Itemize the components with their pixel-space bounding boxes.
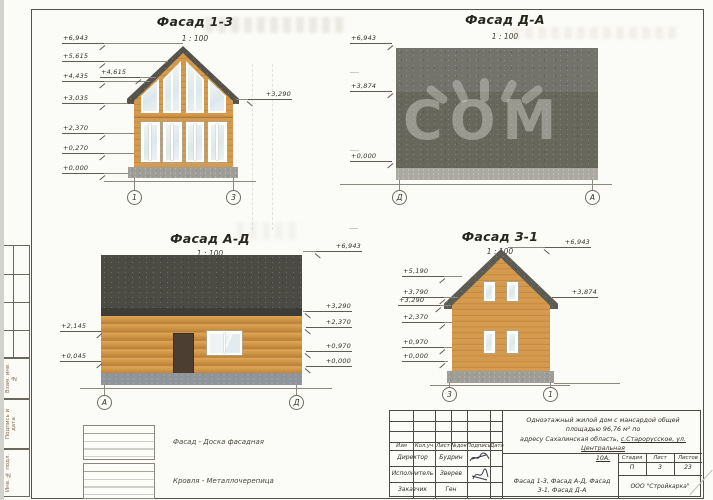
signature [470,468,490,482]
leader-line [140,77,156,78]
elevation-mark: +2,370 [306,316,352,328]
col-header-koluch: Кол.уч [413,443,435,449]
ground-line [340,184,612,185]
elevation-value: +0,970 [326,343,351,350]
facade-1-3-scale: 1 : 100 [125,34,265,43]
stage-value: П [618,465,646,472]
elevation-value: +3,035 [63,95,88,102]
elevation-value: +0,000 [351,153,376,160]
side-stamp-grid [3,245,30,358]
side-stamp-label: Подпись и дата [5,402,17,446]
leader-line [440,305,451,306]
ghost-plan-smudge [236,222,302,240]
floor-trim-line [134,117,233,118]
base-strip [396,168,598,180]
role-executor: Исполнитель [390,471,435,478]
elevation-value: +2,370 [403,314,428,321]
elevation-mark: +0,000 [62,162,104,174]
scan-mark [350,72,359,73]
leader-line [444,347,452,348]
col-header-data: Дата [490,443,502,449]
leader-line [104,43,183,44]
elevation-mark: +0,000 [350,150,392,162]
leader-line [303,251,316,252]
leader-line [444,322,452,323]
axis-bubble: Д [392,190,407,205]
watermark-text: COM [403,94,563,148]
axis-bubble: А [97,395,112,410]
axis-bubble: 1 [543,387,558,402]
foundation-a-d [101,373,302,385]
leader-line [236,99,248,100]
legend-label: Фасад - Доска фасадная [173,438,264,446]
leader-line [104,153,134,154]
elevation-mark: +0,970 [402,336,444,348]
elevation-mark: +2,145 [60,320,101,332]
scan-edge [0,0,4,500]
axis-bubble: Д [289,395,304,410]
ghost-line [252,64,253,230]
elevation-value: +0,000 [326,358,351,365]
elevation-value: +4,435 [63,73,88,80]
stage-label: Стадия [618,455,646,461]
elevation-value: +2,145 [61,323,86,330]
sheets-label: Листов [674,455,702,461]
attic-window [484,282,495,301]
side-stamp-box: Инв. № подл. [3,449,30,497]
axis-bubble: 3 [442,387,457,402]
side-stamp-box: Подпись и дата [3,399,30,449]
elevation-mark: +5,190 [402,265,444,277]
signature [468,451,490,465]
elevation-value: +5,615 [63,53,88,60]
sheet-label: Лист [646,455,674,461]
name-customer: Ген [435,487,467,494]
elevation-mark: +6,943 [316,240,362,252]
window [208,122,227,162]
sheets-value: 23 [674,465,702,472]
foundation-3-1 [447,371,554,383]
elevation-value: +6,943 [336,243,361,250]
elevation-value: +3,874 [351,83,376,90]
ground-line [430,385,570,386]
elevation-value: +0,000 [63,165,88,172]
ground-line [80,388,332,389]
col-header-list: Лист [435,443,451,449]
window [207,331,242,355]
elevation-mark: +3,290 [248,88,292,100]
elevation-mark: +3,874 [350,80,392,92]
elevation-value: +6,943 [351,35,376,42]
title-block: Изм Кол.уч Лист №док Подпись Дата Директ… [389,410,701,497]
ghost-line [272,64,273,230]
window [163,122,182,162]
col-header-podpis: Подпись [467,443,490,449]
company-name: ООО "Стройкарка" [618,484,702,491]
axis-bubble: 1 [127,190,142,205]
material-swatch-roof [83,463,155,499]
elevation-mark: +5,615 [62,50,104,62]
elevation-mark: +4,435 [62,70,104,82]
name-executor: Зверев [435,471,467,478]
leader-line [104,61,168,62]
elevation-mark: +6,943 [62,32,104,44]
window [186,122,205,162]
elevation-mark: +0,045 [60,350,101,362]
ghost-text-smudge [205,17,345,33]
side-stamp-label: Взам. инв. № [5,361,17,396]
side-stamp-box: Взам. инв. № [3,358,30,399]
ground-line-extension [554,383,620,384]
elevation-value: +3,874 [572,289,597,296]
side-stamp-label: Инв. № подл. [5,452,11,494]
col-header-izm: Изм [390,443,413,449]
foundation-1-3 [128,167,238,178]
elevation-value: +3,290 [326,303,351,310]
roof-a-d [101,255,302,308]
leader-line [444,276,462,277]
attic-window [507,282,518,301]
elevation-value: +4,615 [101,69,126,76]
elevation-value: +3,290 [399,297,424,304]
axis-bubble: А [585,190,600,205]
facade-d-a-title: Фасад Д-А [435,12,575,27]
sheet-value: 3 [646,465,674,472]
scan-mark [350,150,359,151]
leader-line [444,361,448,362]
elevation-mark: +6,943 [545,236,591,248]
leader-line [303,311,306,312]
scan-mark [349,228,358,229]
window [507,331,518,353]
wall-a-d [101,316,302,373]
eave-shadow [101,308,302,316]
elevation-value: +5,190 [403,268,428,275]
ghost-text-smudge [512,27,680,39]
leader-line [104,133,134,134]
elevation-value: +3,290 [266,91,291,98]
leader-line [104,173,128,174]
elevation-mark: +2,370 [402,311,444,323]
leader-line [104,81,150,82]
name-director: Будрин [435,455,467,462]
elevation-value: +2,370 [326,319,351,326]
elevation-mark: +3,874 [552,286,598,298]
elevation-value: +0,000 [403,353,428,360]
elevation-mark: +2,370 [62,122,104,134]
elevation-mark: +3,035 [62,92,104,104]
material-swatch-facade [83,425,155,460]
elevation-mark: +4,615 [100,66,140,78]
leader-line [444,297,458,298]
elevation-mark: +3,290 [306,300,352,312]
door [173,333,195,375]
elevation-value: +6,943 [565,239,590,246]
elevation-value: +0,970 [403,339,428,346]
leader-line [104,103,128,104]
elevation-mark: +0,270 [62,142,104,154]
axis-bubble: 3 [226,190,241,205]
elevation-value: +0,045 [61,353,86,360]
col-header-ndok: №док [451,443,467,449]
role-customer: Заказчик [390,487,435,494]
window [141,122,160,162]
window [484,331,495,353]
elevation-mark: +0,000 [402,350,444,362]
elevation-mark: +3,290 [398,294,440,306]
elevation-value: +6,943 [63,35,88,42]
elevation-value: +2,370 [63,125,88,132]
elevation-mark: +6,943 [350,32,392,44]
role-director: Директор [390,455,435,462]
legend-label: Кровля - Металлочерепица [173,477,274,485]
elevation-mark: +0,970 [306,340,352,352]
leader-line [508,247,545,248]
elevation-mark: +0,000 [306,355,352,367]
elevation-value: +0,270 [63,145,88,152]
drawing-title: Фасад 1-3, Фасад А-Д, Фасад З-1, Фасад Д… [510,477,614,496]
